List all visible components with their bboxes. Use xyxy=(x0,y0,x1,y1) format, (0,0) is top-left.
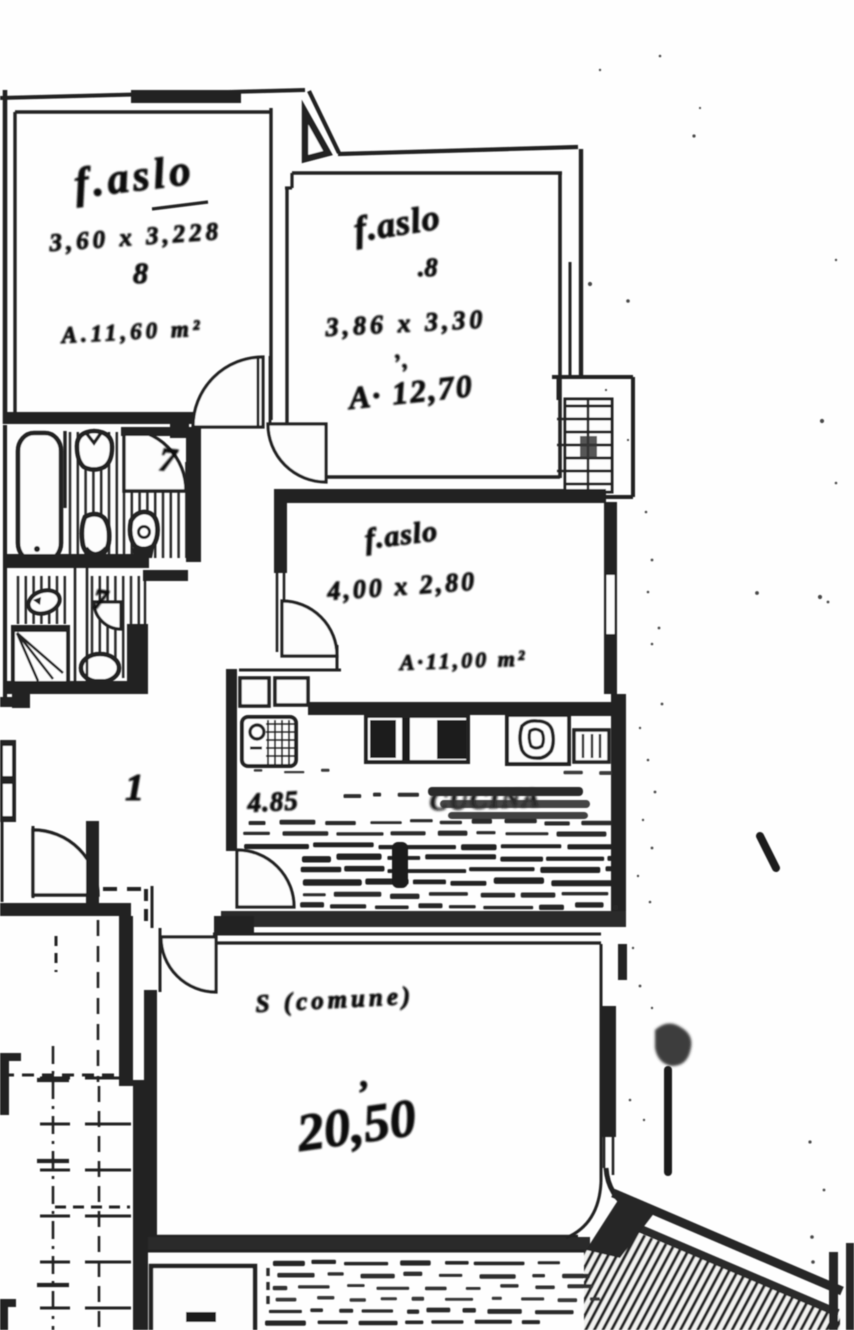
svg-text:4.85: 4.85 xyxy=(246,785,300,818)
svg-text:.8: .8 xyxy=(418,253,438,282)
svg-text:A·11,00 m²: A·11,00 m² xyxy=(397,646,527,676)
svg-text:8: 8 xyxy=(133,257,148,290)
svg-text:1: 1 xyxy=(125,767,144,809)
svg-text:’: ’ xyxy=(356,1073,368,1113)
